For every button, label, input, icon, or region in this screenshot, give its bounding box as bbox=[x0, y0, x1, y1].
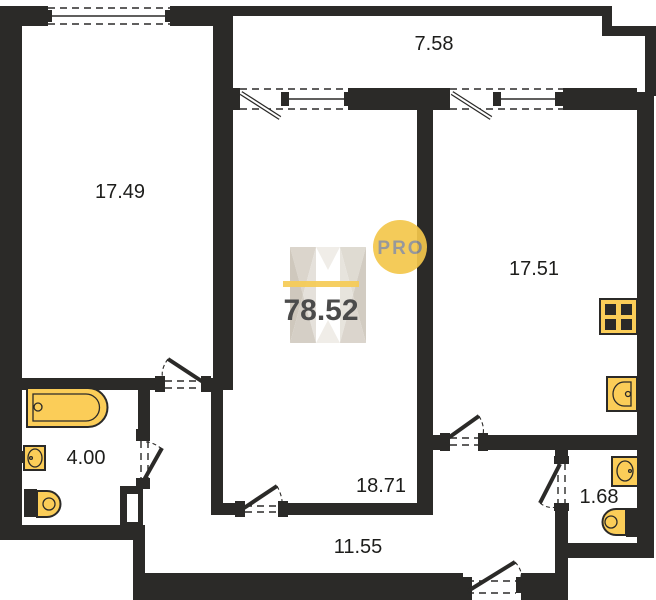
watermark-accent-line bbox=[283, 281, 359, 287]
balcony-unit-left bbox=[240, 89, 348, 118]
windows bbox=[48, 8, 563, 118]
door-bathroom bbox=[141, 441, 162, 480]
room-label-kitchen-right: 17.51 bbox=[509, 258, 559, 280]
wall-bottom-a bbox=[133, 573, 463, 600]
balcony-unit-right bbox=[450, 89, 563, 118]
wall-wc-bottom bbox=[555, 543, 654, 558]
room-label-bathroom: 4.00 bbox=[67, 447, 106, 469]
door-center-room bbox=[244, 486, 282, 512]
room-label-wc: 1.68 bbox=[580, 486, 619, 508]
wall-right-upper bbox=[645, 26, 656, 96]
door-entry bbox=[467, 562, 521, 593]
wall-right bbox=[637, 92, 654, 558]
room-label-balcony: 7.58 bbox=[415, 33, 454, 55]
wall-center-right-divider bbox=[417, 110, 433, 515]
wall-center-room-bottom-b bbox=[280, 503, 430, 515]
bathroom-toilet-icon bbox=[24, 489, 61, 517]
window-top-left bbox=[48, 8, 170, 24]
bathtub-icon bbox=[27, 388, 108, 427]
shaft-opening bbox=[127, 494, 138, 522]
wall-sill-mid bbox=[348, 88, 450, 110]
wall-room-divider-left bbox=[213, 6, 233, 390]
door-wc bbox=[540, 463, 565, 508]
stove-icon bbox=[600, 299, 637, 334]
wall-sill-left bbox=[233, 88, 240, 110]
wall-kitchen-bottom-a bbox=[417, 435, 443, 450]
wall-balcony-top bbox=[233, 6, 612, 16]
bathroom-sink-icon bbox=[20, 446, 45, 470]
wall-sill-right bbox=[563, 88, 637, 110]
pro-badge: PRO bbox=[373, 220, 427, 274]
kitchen-sink-icon bbox=[607, 377, 637, 411]
room-label-center-room: 18.71 bbox=[356, 475, 406, 497]
wall-left-step bbox=[133, 538, 145, 578]
door-room-left bbox=[162, 359, 203, 388]
wall-top-left-a bbox=[0, 6, 48, 26]
room-label-living-left: 17.49 bbox=[95, 181, 145, 203]
wc-sink-icon bbox=[612, 457, 638, 486]
total-area-label: 78.52 bbox=[283, 294, 358, 327]
floor-plan-canvas: 78.52 PRO 17.49 7.58 17.51 18.71 4.00 11… bbox=[0, 0, 656, 600]
wall-bottom-b bbox=[521, 573, 568, 600]
wc-toilet-icon bbox=[603, 508, 641, 537]
wall-left bbox=[0, 6, 22, 540]
room-label-hallway: 11.55 bbox=[334, 536, 383, 558]
wall-hall-center bbox=[211, 390, 223, 515]
wall-balcony-step-h bbox=[602, 26, 650, 36]
pro-badge-label: PRO bbox=[377, 238, 424, 259]
watermark: 78.52 PRO bbox=[283, 220, 427, 343]
floor-plan: 78.52 PRO 17.49 7.58 17.51 18.71 4.00 11… bbox=[0, 0, 656, 600]
